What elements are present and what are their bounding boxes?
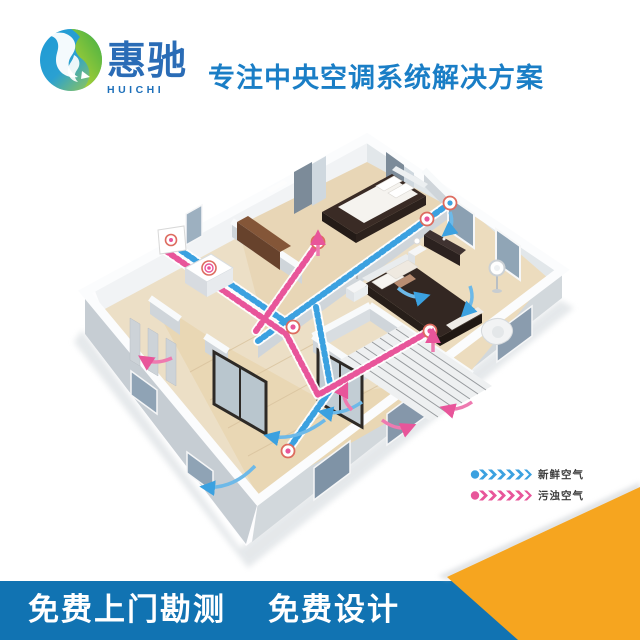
service-survey-label: 免费上门勘测 [28, 592, 226, 627]
armchair-cushion [492, 326, 504, 338]
legend: 新鲜空气 污浊空气 [470, 466, 584, 508]
exhaust-air-arrow-icon [470, 489, 532, 502]
service-design-label: 免费设计 [268, 592, 400, 627]
legend-row-exhaust-air: 污浊空气 [470, 487, 584, 503]
footer-services: 免费上门勘测免费设计 [28, 581, 442, 640]
legend-label-exhaust-air: 污浊空气 [538, 488, 584, 503]
footer-bar: 免费上门勘测免费设计 [0, 581, 640, 640]
wall-vent [158, 226, 186, 254]
floorplan-illustration [0, 0, 640, 640]
promo-page: 惠驰 HUICHI 专注中央空调系统解决方案 [0, 0, 640, 640]
legend-row-fresh-air: 新鲜空气 [470, 466, 584, 482]
legend-label-fresh-air: 新鲜空气 [538, 467, 584, 482]
fresh-air-arrow-icon [470, 468, 532, 481]
